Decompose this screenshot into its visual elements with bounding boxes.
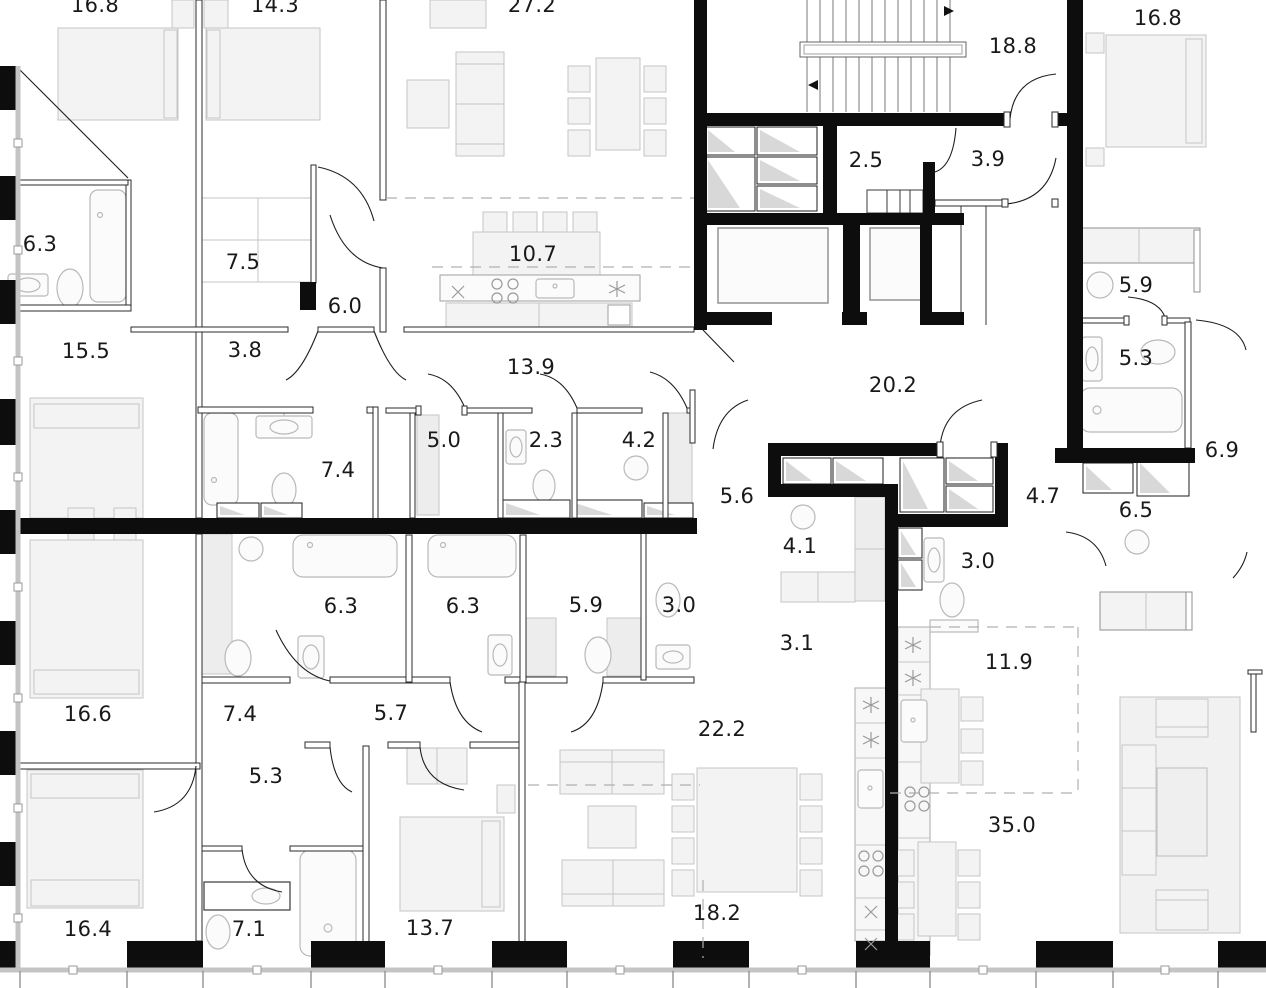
room-area-label: 16.8 [71,0,119,17]
room-area-label: 2.5 [849,148,884,172]
room-area-label: 6.3 [23,232,58,256]
room-area-label: 6.9 [1205,438,1240,462]
floor-plan-drawing [0,0,1266,988]
room-area-label: 15.5 [62,339,110,363]
room-area-label: 16.6 [64,702,112,726]
room-area-label: 5.6 [720,484,755,508]
room-area-label: 18.2 [693,901,741,925]
room-area-label: 3.9 [971,147,1006,171]
room-area-label: 13.9 [507,355,555,379]
room-area-label: 5.9 [569,593,604,617]
room-area-label: 4.7 [1026,484,1061,508]
room-area-label: 27.2 [508,0,556,17]
room-area-label: 5.3 [249,764,284,788]
room-area-label: 5.0 [427,428,462,452]
room-area-label: 6.5 [1119,498,1154,522]
door-arc [318,167,374,221]
room-area-label: 5.7 [374,701,409,725]
room-area-label: 4.2 [622,428,657,452]
stair-up-arrow-icon [944,6,954,16]
room-area-label: 3.0 [662,593,697,617]
room-area-label: 16.4 [64,917,112,941]
stair-down-arrow-icon [808,80,818,90]
room-area-label: 14.3 [251,0,299,17]
room-area-label: 5.9 [1119,273,1154,297]
floor-plan: 16.8 14.3 27.2 18.8 16.8 2.5 3.9 6.3 7.5… [0,0,1266,988]
room-area-label: 10.7 [509,242,557,266]
room-area-label: 13.7 [406,916,454,940]
room-area-label: 5.3 [1119,346,1154,370]
room-area-label: 35.0 [988,813,1036,837]
room-area-label: 3.1 [780,631,815,655]
room-area-label: 22.2 [698,717,746,741]
room-area-label: 11.9 [985,650,1033,674]
room-area-label: 6.3 [324,594,359,618]
room-area-label: 20.2 [869,373,917,397]
room-area-label: 7.4 [223,702,258,726]
room-area-label: 4.1 [783,534,818,558]
staircase [800,0,966,112]
room-area-label: 6.3 [446,594,481,618]
room-area-label: 7.4 [321,458,356,482]
room-area-label: 3.8 [228,338,263,362]
room-area-label: 16.8 [1134,6,1182,30]
room-area-label: 7.5 [226,250,261,274]
room-area-label: 6.0 [328,294,363,318]
room-area-label: 7.1 [232,917,267,941]
room-area-label: 3.0 [961,549,996,573]
room-area-label: 2.3 [529,428,564,452]
room-area-label: 18.8 [989,34,1037,58]
